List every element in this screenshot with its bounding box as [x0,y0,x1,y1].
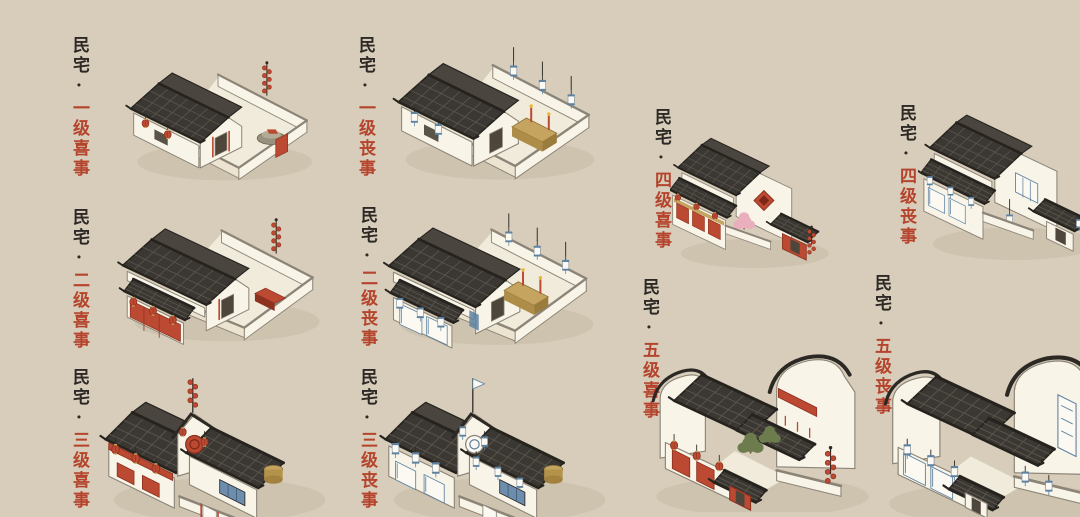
house-label-prefix: 民宅· [69,208,89,271]
card-residence-joy-level5[interactable]: 民宅·五级喜事 [634,270,878,514]
house-label: 民宅·一级喜事 [70,36,87,179]
house-label-level: 四级喜事 [651,171,671,251]
card-residence-joy-level2[interactable]: 民宅·二级喜事 [68,194,350,356]
house-label-prefix: 民宅· [69,368,89,431]
house-level1 [394,48,595,180]
house-illustration-joy-level4[interactable] [670,88,842,268]
house-illustration-mourning-level3[interactable] [372,362,624,517]
house-level5 [653,356,869,512]
card-residence-joy-level3[interactable]: 民宅·三级喜事 [68,352,350,517]
firecracker-string [262,61,271,95]
gable-medallion [466,436,484,454]
card-residence-joy-level1[interactable]: 民宅·一级喜事 [68,30,326,196]
house-label-prefix: 民宅· [896,104,916,167]
house-illustration-joy-level5[interactable] [648,286,874,512]
house-illustration-joy-level3[interactable] [88,362,348,517]
house-label-prefix: 民宅· [651,108,671,171]
house-label: 民宅·二级喜事 [70,208,87,351]
card-residence-joy-level4[interactable]: 民宅·四级喜事 [644,86,846,270]
house-level2 [384,214,593,348]
house-level4 [670,138,829,268]
card-residence-mourning-level3[interactable]: 民宅·三级丧事 [352,354,618,517]
house-label-level: 二级喜事 [69,271,89,351]
house-illustration-mourning-level5[interactable] [880,282,1080,517]
card-residence-mourning-level2[interactable]: 民宅·二级丧事 [352,192,616,360]
house-level1 [126,61,312,180]
house-illustration-mourning-level2[interactable] [372,198,614,356]
house-level2 [118,218,319,344]
red-lantern [716,455,723,471]
house-label-prefix: 民宅· [355,36,375,99]
house-label: 民宅·四级喜事 [652,108,669,251]
house-label: 民宅·一级丧事 [356,36,373,179]
card-residence-mourning-level1[interactable]: 民宅·一级丧事 [352,24,614,194]
gable-medallion [186,436,204,454]
house-level5 [885,357,1080,517]
house-illustration-joy-level2[interactable] [96,200,350,352]
house-label-level: 三级喜事 [69,431,89,511]
house-illustration-mourning-level4[interactable] [918,90,1080,260]
house-label-level: 四级丧事 [896,167,916,247]
house-illustration-joy-level1[interactable] [114,42,328,190]
house-label-level: 一级丧事 [355,99,375,179]
card-residence-mourning-level5[interactable]: 民宅·五级丧事 [864,266,1080,517]
firecracker-string [272,218,281,253]
building-gallery: 民宅·一级喜事 民宅·一级丧事 民宅·二级喜事 民宅·二级丧事 民宅·三级喜事 … [0,0,1080,517]
house-label-level: 一级喜事 [69,99,89,179]
house-level4 [918,115,1080,260]
card-residence-mourning-level4[interactable]: 民宅·四级丧事 [888,90,1080,262]
house-level3 [380,379,605,517]
mourning-banner [1058,395,1076,457]
house-label: 民宅·四级丧事 [897,104,914,247]
house-label-prefix: 民宅· [69,36,89,99]
house-label: 民宅·三级喜事 [70,368,87,511]
house-illustration-mourning-level1[interactable] [380,30,612,190]
house-level3 [100,379,325,517]
